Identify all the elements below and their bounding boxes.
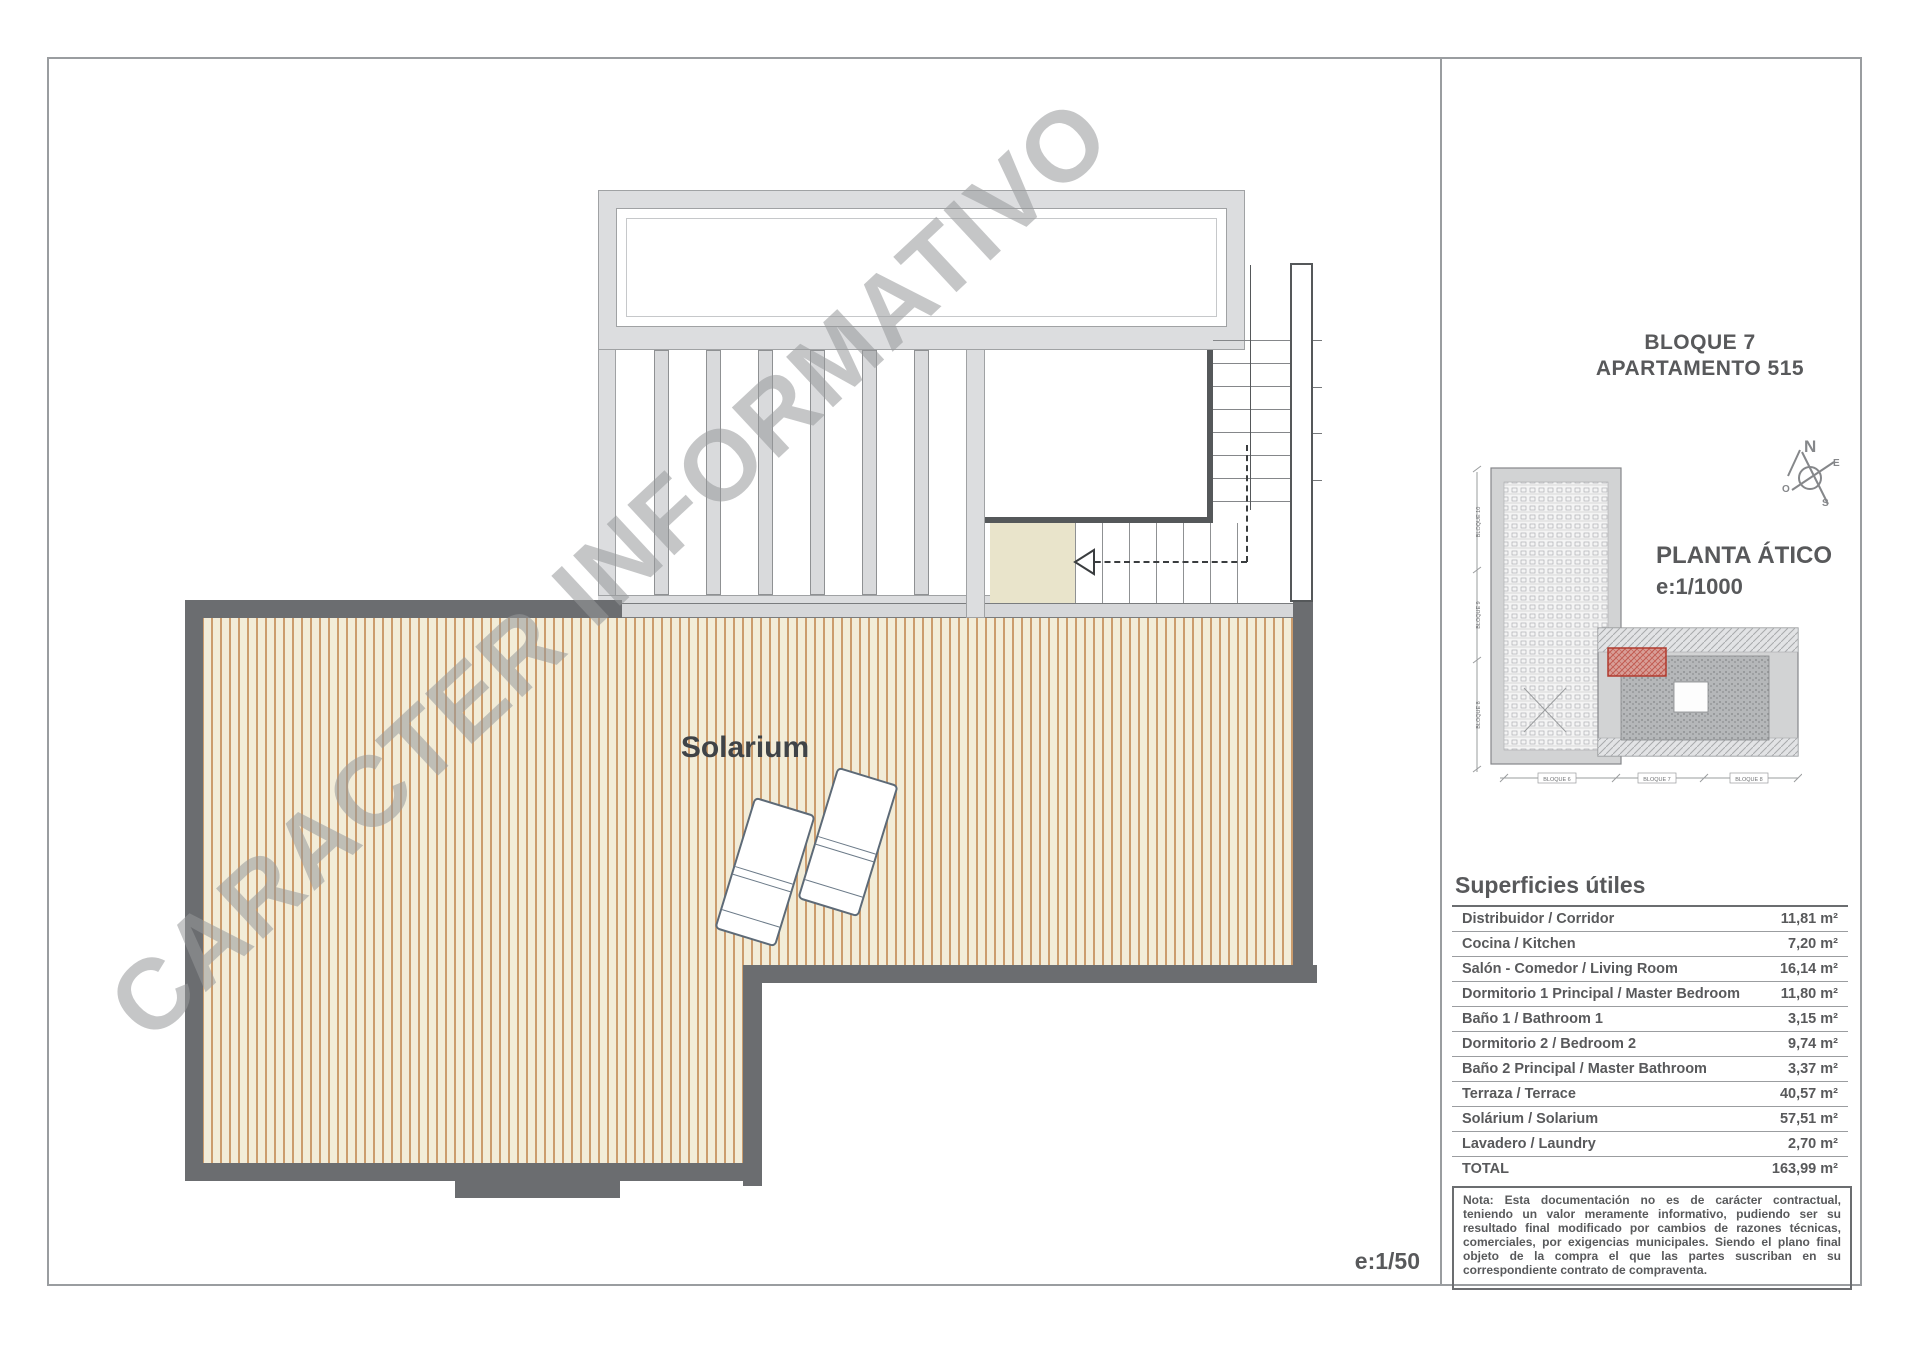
svg-text:BLOQUE 6: BLOQUE 6: [1543, 777, 1571, 783]
surface-label: Terraza / Terrace: [1452, 1086, 1576, 1102]
stair-rail-line: [1250, 265, 1251, 510]
surface-label: Solárium / Solarium: [1452, 1111, 1598, 1127]
deck-wall-lower-tab: [455, 1181, 620, 1198]
surfaces-table-row: TOTAL163,99 m²: [1452, 1157, 1848, 1181]
locator-title: PLANTA ÁTICO: [1656, 540, 1832, 572]
surfaces-table-row: Lavadero / Laundry2,70 m²: [1452, 1132, 1848, 1157]
plan-sheet: Solarium CARACTER INFORMATIVO e:1/50 BLO…: [0, 0, 1920, 1352]
stair-tick: [1313, 387, 1322, 388]
surfaces-table-row: Salón - Comedor / Living Room16,14 m²: [1452, 957, 1848, 982]
surfaces-table: Distribuidor / Corridor11,81 m²Cocina / …: [1452, 905, 1848, 1181]
surface-value: 16,14 m²: [1780, 961, 1848, 977]
surface-value: 163,99 m²: [1772, 1161, 1848, 1177]
surface-value: 11,80 m²: [1781, 986, 1848, 1002]
surface-label: Dormitorio 2 / Bedroom 2: [1452, 1036, 1636, 1052]
surface-value: 3,15 m²: [1788, 1011, 1848, 1027]
locator-highlighted-unit: [1608, 648, 1666, 676]
pergola-right-frame: [966, 349, 985, 618]
solarium-deck-lower: [202, 965, 743, 1163]
plan-scale-label: e:1/50: [1310, 1248, 1420, 1275]
svg-text:BLOQUE 8: BLOQUE 8: [1476, 701, 1482, 729]
svg-text:BLOQUE 10: BLOQUE 10: [1476, 507, 1482, 538]
stair-tick: [1313, 433, 1322, 434]
surface-label: TOTAL: [1452, 1161, 1509, 1177]
surfaces-table-row: Dormitorio 2 / Bedroom 29,74 m²: [1452, 1032, 1848, 1057]
svg-text:N: N: [1804, 437, 1816, 456]
surface-value: 11,81 m²: [1781, 911, 1848, 927]
surfaces-table-row: Dormitorio 1 Principal / Master Bedroom1…: [1452, 982, 1848, 1007]
locator-caption: PLANTA ÁTICO e:1/1000: [1656, 540, 1832, 602]
stair-direction-dash-horizontal: [1085, 561, 1247, 563]
stair-flight-upper: [1213, 340, 1290, 512]
surfaces-table-row: Baño 1 / Bathroom 13,15 m²: [1452, 1007, 1848, 1032]
locator-scale: e:1/1000: [1656, 572, 1832, 602]
surfaces-table-row: Solárium / Solarium57,51 m²: [1452, 1107, 1848, 1132]
block-title-line2: APARTAMENTO 515: [1540, 356, 1860, 382]
surfaces-table-rows: Distribuidor / Corridor11,81 m²Cocina / …: [1452, 907, 1848, 1181]
legal-note: Nota: Esta documentación no es de caráct…: [1452, 1186, 1852, 1290]
block-title-line1: BLOQUE 7: [1540, 330, 1860, 356]
stair-flight-lower: [1075, 523, 1245, 603]
deck-top-edging: [622, 603, 1293, 618]
surfaces-table-row: Baño 2 Principal / Master Bathroom3,37 m…: [1452, 1057, 1848, 1082]
surface-label: Cocina / Kitchen: [1452, 936, 1576, 952]
surface-value: 2,70 m²: [1788, 1136, 1848, 1152]
pergola-slat: [914, 350, 929, 595]
deck-wall-bottom-right: [743, 965, 1317, 983]
surface-label: Distribuidor / Corridor: [1452, 911, 1614, 927]
surface-label: Salón - Comedor / Living Room: [1452, 961, 1678, 977]
surfaces-table-row: Terraza / Terrace40,57 m²: [1452, 1082, 1848, 1107]
panel-divider-line: [1440, 57, 1442, 1286]
stair-direction-dash-vertical: [1246, 445, 1248, 562]
surfaces-table-row: Distribuidor / Corridor11,81 m²: [1452, 907, 1848, 932]
surface-label: Baño 1 / Bathroom 1: [1452, 1011, 1603, 1027]
surface-label: Baño 2 Principal / Master Bathroom: [1452, 1061, 1707, 1077]
surface-value: 7,20 m²: [1788, 936, 1848, 952]
svg-text:BLOQUE 9: BLOQUE 9: [1476, 601, 1482, 629]
surface-value: 3,37 m²: [1788, 1061, 1848, 1077]
svg-text:E: E: [1833, 458, 1840, 469]
surface-value: 57,51 m²: [1780, 1111, 1848, 1127]
stair-direction-arrow-icon: [1072, 548, 1100, 576]
stair-side-wall: [1290, 263, 1313, 602]
deck-wall-step: [743, 965, 762, 1186]
surfaces-table-row: Cocina / Kitchen7,20 m²: [1452, 932, 1848, 957]
surfaces-title: Superficies útiles: [1455, 872, 1645, 899]
svg-text:BLOQUE 7: BLOQUE 7: [1643, 777, 1671, 783]
deck-wall-bottom-left: [185, 1163, 762, 1181]
block-apartment-title: BLOQUE 7 APARTAMENTO 515: [1540, 330, 1860, 383]
surface-value: 40,57 m²: [1780, 1086, 1848, 1102]
room-label-solarium: Solarium: [625, 731, 865, 765]
site-locator-map: BLOQUE 10 BLOQUE 9 BLOQUE 8 BLOQUE 6 BLO…: [1466, 460, 1802, 790]
svg-text:S: S: [1822, 498, 1829, 509]
stair-tick: [1313, 340, 1322, 341]
deck-wall-right: [1293, 602, 1313, 983]
surface-label: Lavadero / Laundry: [1452, 1136, 1596, 1152]
svg-text:BLOQUE 8: BLOQUE 8: [1735, 777, 1763, 783]
surface-label: Dormitorio 1 Principal / Master Bedroom: [1452, 986, 1740, 1002]
stair-tick: [1313, 480, 1322, 481]
surface-value: 9,74 m²: [1788, 1036, 1848, 1052]
